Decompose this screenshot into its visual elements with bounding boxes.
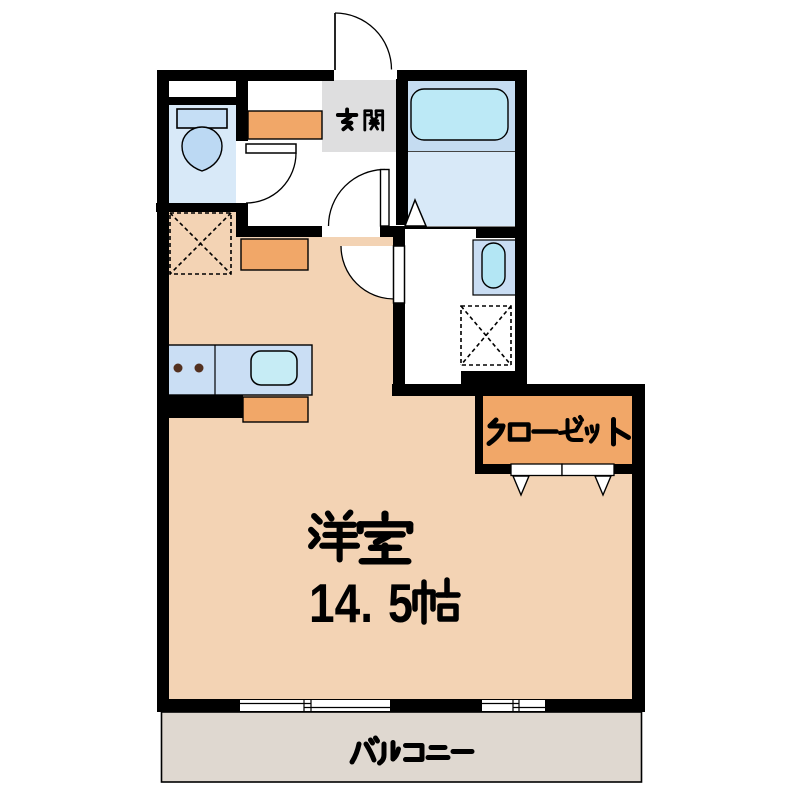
svg-text:14.: 14. [309, 572, 373, 634]
svg-text:5: 5 [388, 572, 413, 634]
